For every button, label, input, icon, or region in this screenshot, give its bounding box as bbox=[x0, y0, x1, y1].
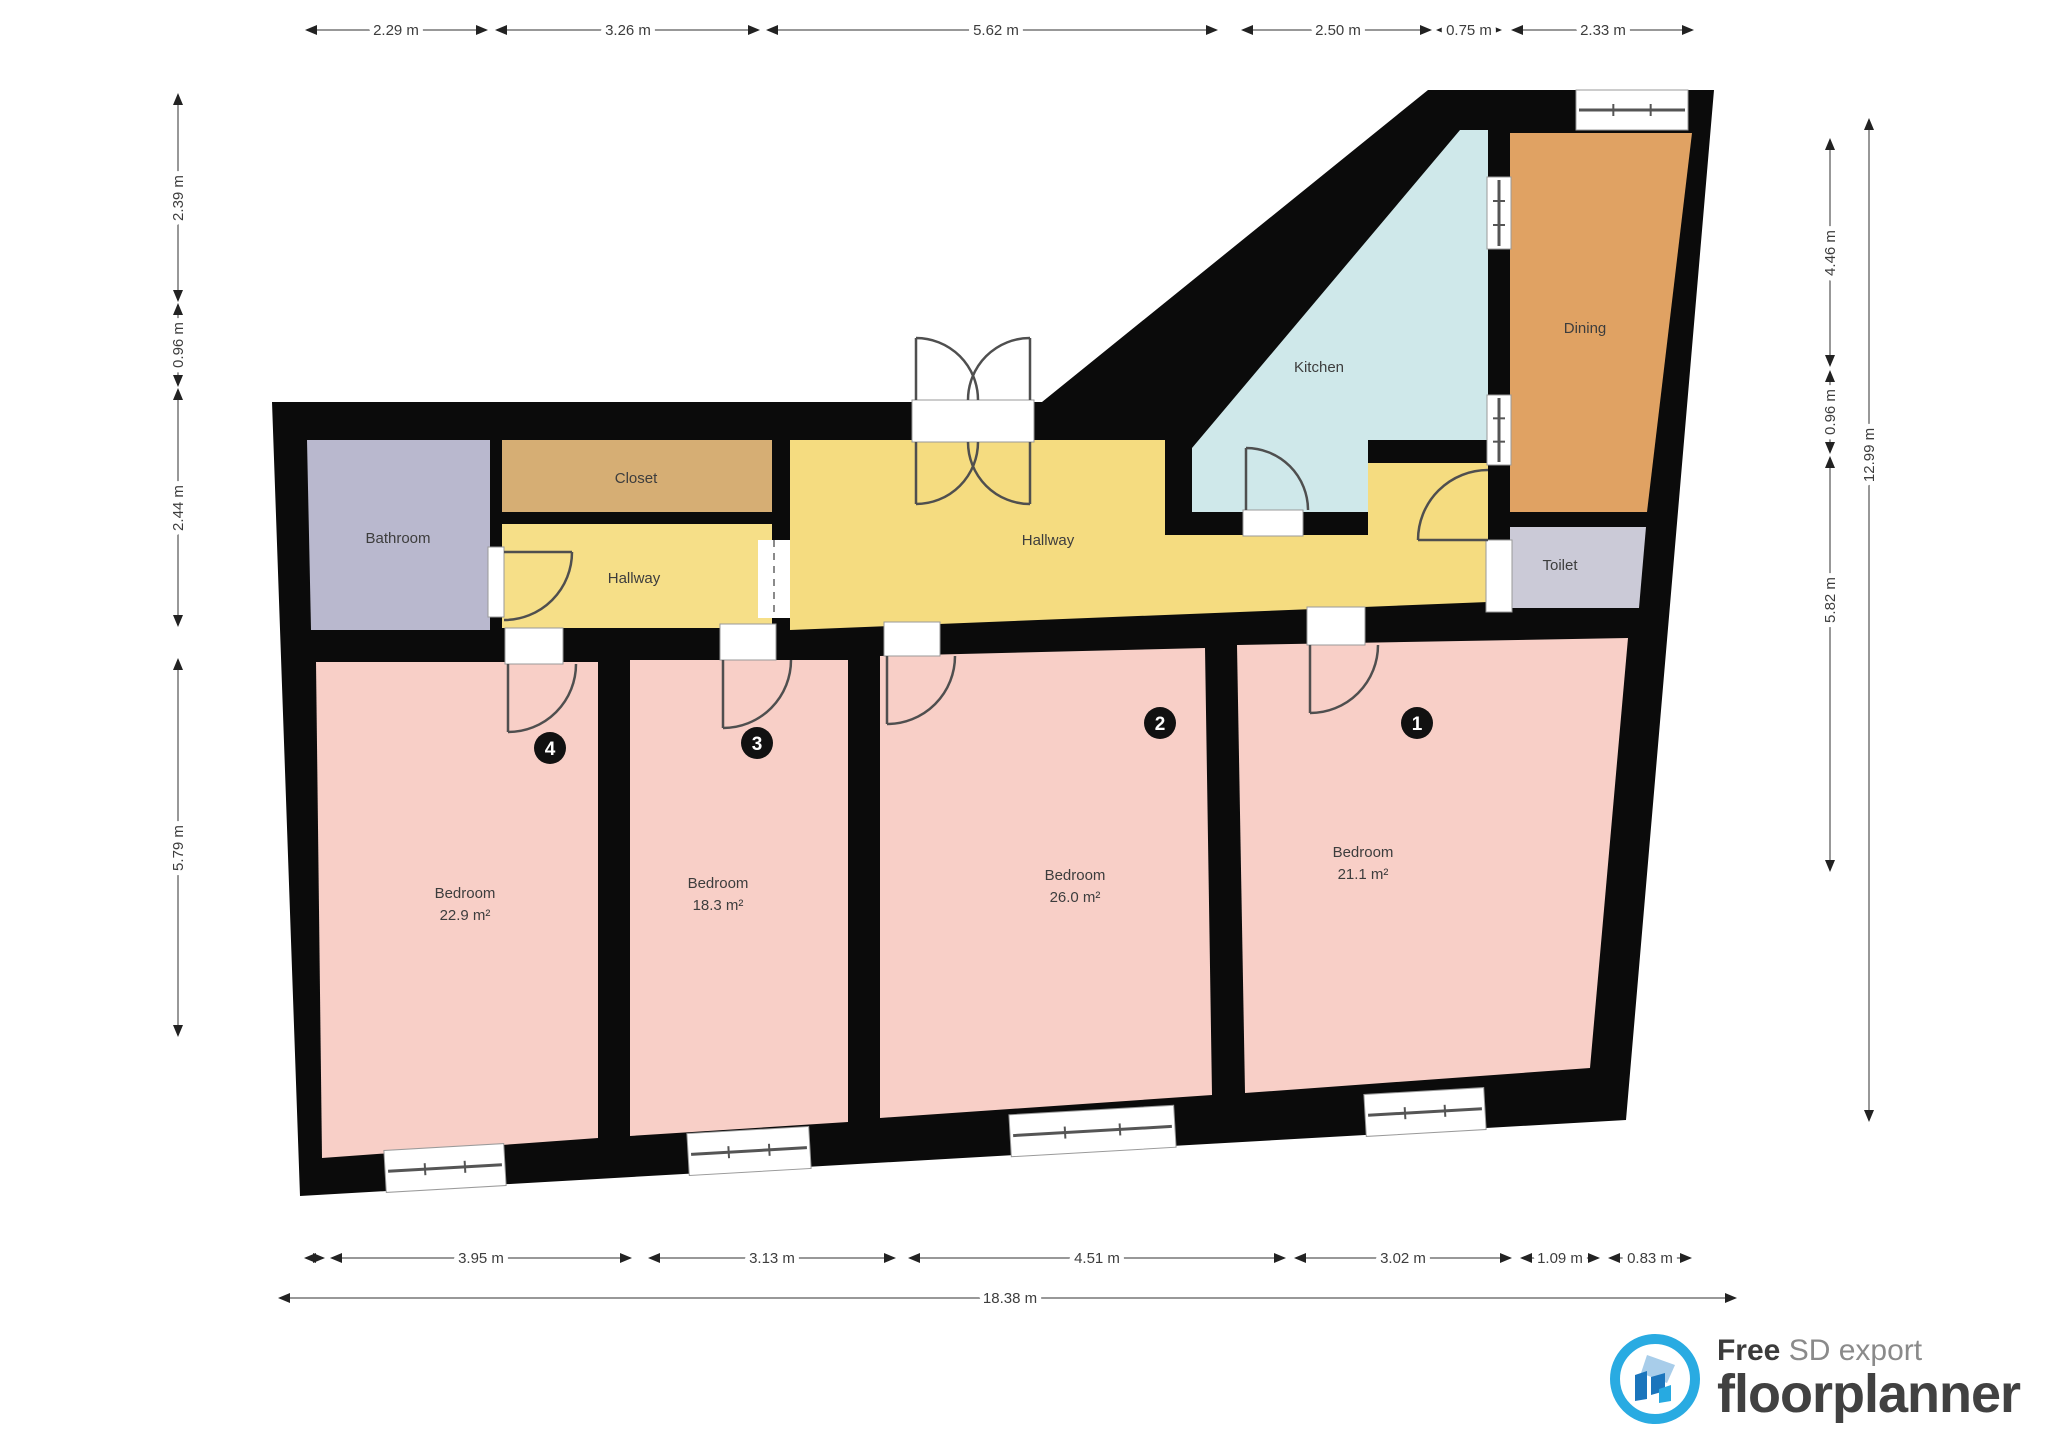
window-bedroom-1 bbox=[1364, 1088, 1486, 1137]
floorplanner-watermark: Free SD export floorplanner bbox=[1607, 1331, 2020, 1427]
dimension-label-top-2: 5.62 m bbox=[973, 22, 1019, 39]
dimension-label-top-0: 2.29 m bbox=[373, 22, 419, 39]
dimension-label-bottom-1: 3.95 m bbox=[458, 1250, 504, 1267]
room-number-3: 3 bbox=[752, 734, 763, 755]
dimension-label-left-2: 2.44 m bbox=[170, 485, 187, 531]
room-area-bedroom-2: 26.0 m² bbox=[1050, 889, 1101, 906]
room-area-bedroom-4: 22.9 m² bbox=[440, 907, 491, 924]
window-bedroom-1-tick bbox=[1405, 1107, 1406, 1119]
dimension-label-top-4: 0.75 m bbox=[1446, 22, 1492, 39]
room-label-bedroom-4: Bedroom bbox=[435, 885, 496, 902]
window-kitchen-wall-2 bbox=[1487, 395, 1511, 465]
bedroom-1-door-opening bbox=[1307, 607, 1365, 645]
kitchen-door-opening bbox=[1243, 510, 1303, 536]
window-bedroom-3-tick2 bbox=[769, 1144, 770, 1156]
room-number-4: 4 bbox=[545, 739, 556, 760]
room-label-hallway-main: Hallway bbox=[1022, 532, 1075, 549]
room-number-2: 2 bbox=[1155, 714, 1166, 735]
dimension-label-bottom-5: 1.09 m bbox=[1537, 1250, 1583, 1267]
dimension-label-right-0: 4.46 m bbox=[1822, 230, 1839, 276]
hallway-double-door-opening bbox=[912, 400, 1034, 442]
floor-plan-svg: BathroomClosetHallwayHallwayKitchenDinin… bbox=[0, 0, 2048, 1449]
room-label-dining: Dining bbox=[1564, 320, 1607, 337]
dimension-label-bottom-2: 3.13 m bbox=[749, 1250, 795, 1267]
window-bedroom-4-tick bbox=[425, 1163, 426, 1175]
window-bedroom-2-tick2 bbox=[1120, 1123, 1121, 1135]
bedroom-4-door-opening bbox=[505, 628, 563, 664]
room-label-bedroom-2: Bedroom bbox=[1045, 867, 1106, 884]
dimension-label-left-0: 2.39 m bbox=[170, 175, 187, 221]
bathroom-door-opening bbox=[488, 547, 504, 617]
floorplanner-logo-icon bbox=[1607, 1331, 1703, 1427]
room-label-hallway-small: Hallway bbox=[608, 570, 661, 587]
window-bedroom-2 bbox=[1009, 1105, 1176, 1156]
dimension-label-top-1: 3.26 m bbox=[605, 22, 651, 39]
dimension-label-right-1: 0.96 m bbox=[1822, 389, 1839, 435]
room-toilet bbox=[1510, 527, 1646, 608]
room-number-1: 1 bbox=[1412, 714, 1423, 735]
bedroom-3-door-opening bbox=[720, 624, 776, 660]
floor-plan-canvas: BathroomClosetHallwayHallwayKitchenDinin… bbox=[0, 0, 2048, 1449]
window-bedroom-4 bbox=[384, 1144, 506, 1193]
toilet-door-opening bbox=[1486, 540, 1512, 612]
dimension-label-bottom-6: 0.83 m bbox=[1627, 1250, 1673, 1267]
window-dining-top bbox=[1576, 90, 1688, 130]
window-bedroom-1-tick2 bbox=[1445, 1105, 1446, 1117]
free-sd-export-label: Free SD export bbox=[1717, 1335, 2020, 1367]
window-bedroom-2-tick bbox=[1065, 1127, 1066, 1139]
dimension-label-top-5: 2.33 m bbox=[1580, 22, 1626, 39]
room-area-bedroom-1: 21.1 m² bbox=[1338, 866, 1389, 883]
room-bedroom-1 bbox=[1237, 638, 1628, 1093]
dimension-label-bottom-3: 4.51 m bbox=[1074, 1250, 1120, 1267]
dimension-label-left-1: 0.96 m bbox=[170, 322, 187, 368]
floorplanner-brand-text: floorplanner bbox=[1717, 1366, 2020, 1423]
free-label: Free bbox=[1717, 1334, 1780, 1367]
room-label-bathroom: Bathroom bbox=[365, 530, 430, 547]
room-area-bedroom-3: 18.3 m² bbox=[693, 897, 744, 914]
window-bedroom-3-tick bbox=[728, 1146, 729, 1158]
room-label-bedroom-3: Bedroom bbox=[688, 875, 749, 892]
bedroom-2-door-opening bbox=[884, 622, 940, 656]
dimension-label-right-3: 12.99 m bbox=[1861, 428, 1878, 482]
room-label-kitchen: Kitchen bbox=[1294, 359, 1344, 376]
dimension-label-top-3: 2.50 m bbox=[1315, 22, 1361, 39]
room-label-closet: Closet bbox=[615, 470, 658, 487]
dimension-label-left-3: 5.79 m bbox=[170, 825, 187, 871]
room-label-toilet: Toilet bbox=[1542, 557, 1578, 574]
window-bedroom-4-tick2 bbox=[465, 1161, 466, 1173]
sd-export-label: SD export bbox=[1780, 1334, 1922, 1367]
dimension-label-right-2: 5.82 m bbox=[1822, 577, 1839, 623]
room-label-bedroom-1: Bedroom bbox=[1333, 844, 1394, 861]
window-bedroom-3 bbox=[687, 1127, 811, 1176]
dimension-label-bottom-4: 3.02 m bbox=[1380, 1250, 1426, 1267]
room-hallway-main bbox=[790, 440, 1488, 630]
window-kitchen-wall-1 bbox=[1487, 177, 1511, 249]
dimension-label-bottom-7: 18.38 m bbox=[983, 1290, 1037, 1307]
